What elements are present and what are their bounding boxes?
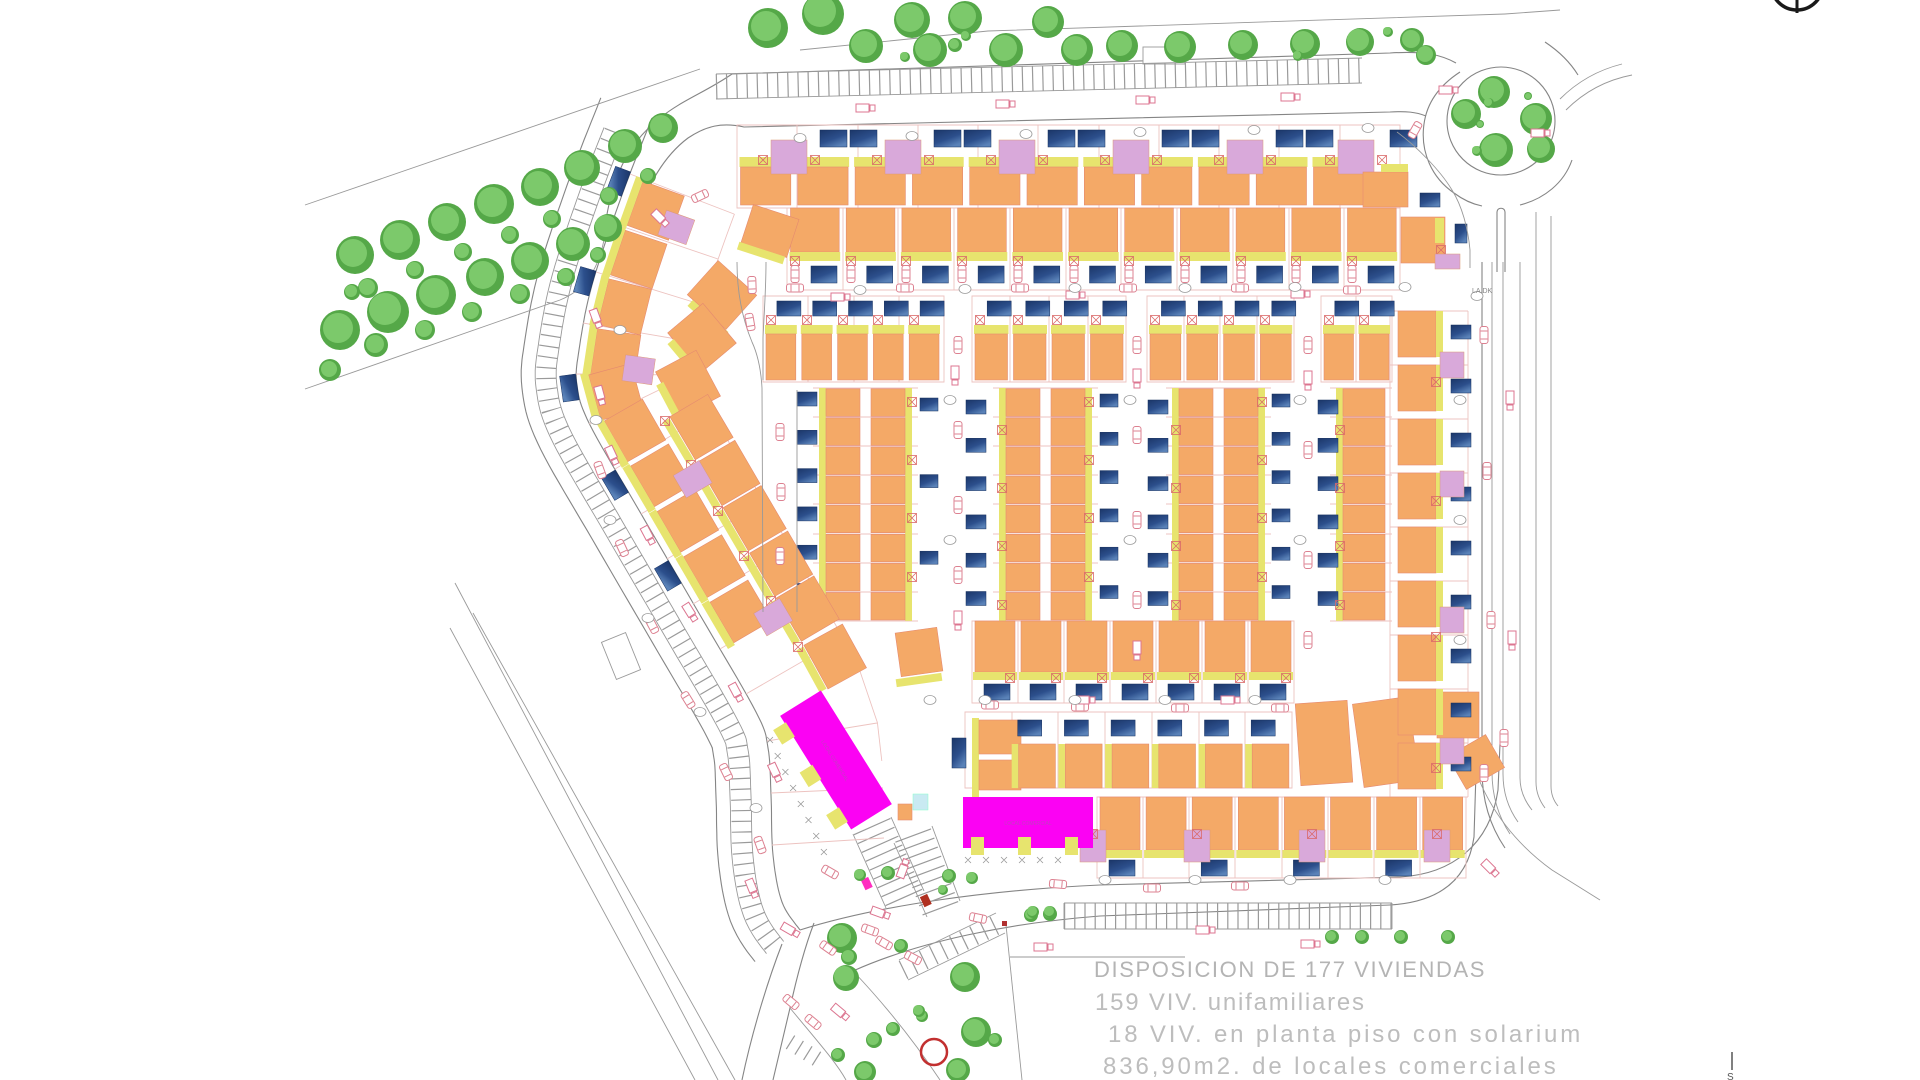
- svg-text:159 VIV. unifamiliares: 159 VIV. unifamiliares: [1095, 989, 1366, 1016]
- svg-text:836,90m2. de locales comerc: 836,90m2. de locales comerciales: [1103, 1053, 1559, 1080]
- svg-text:LA.DK: LA.DK: [1472, 288, 1493, 295]
- svg-text:S: S: [1727, 1072, 1734, 1080]
- svg-text:18 VIV. en planta piso co: 18 VIV. en planta piso con solarium: [1108, 1021, 1583, 1048]
- svg-text:DISPOSICION DE 177 VIVIENDA: DISPOSICION DE 177 VIVIENDAS: [1094, 957, 1486, 982]
- svg-text:LOCAL COMERCIAL: LOCAL COMERCIAL: [1004, 821, 1052, 827]
